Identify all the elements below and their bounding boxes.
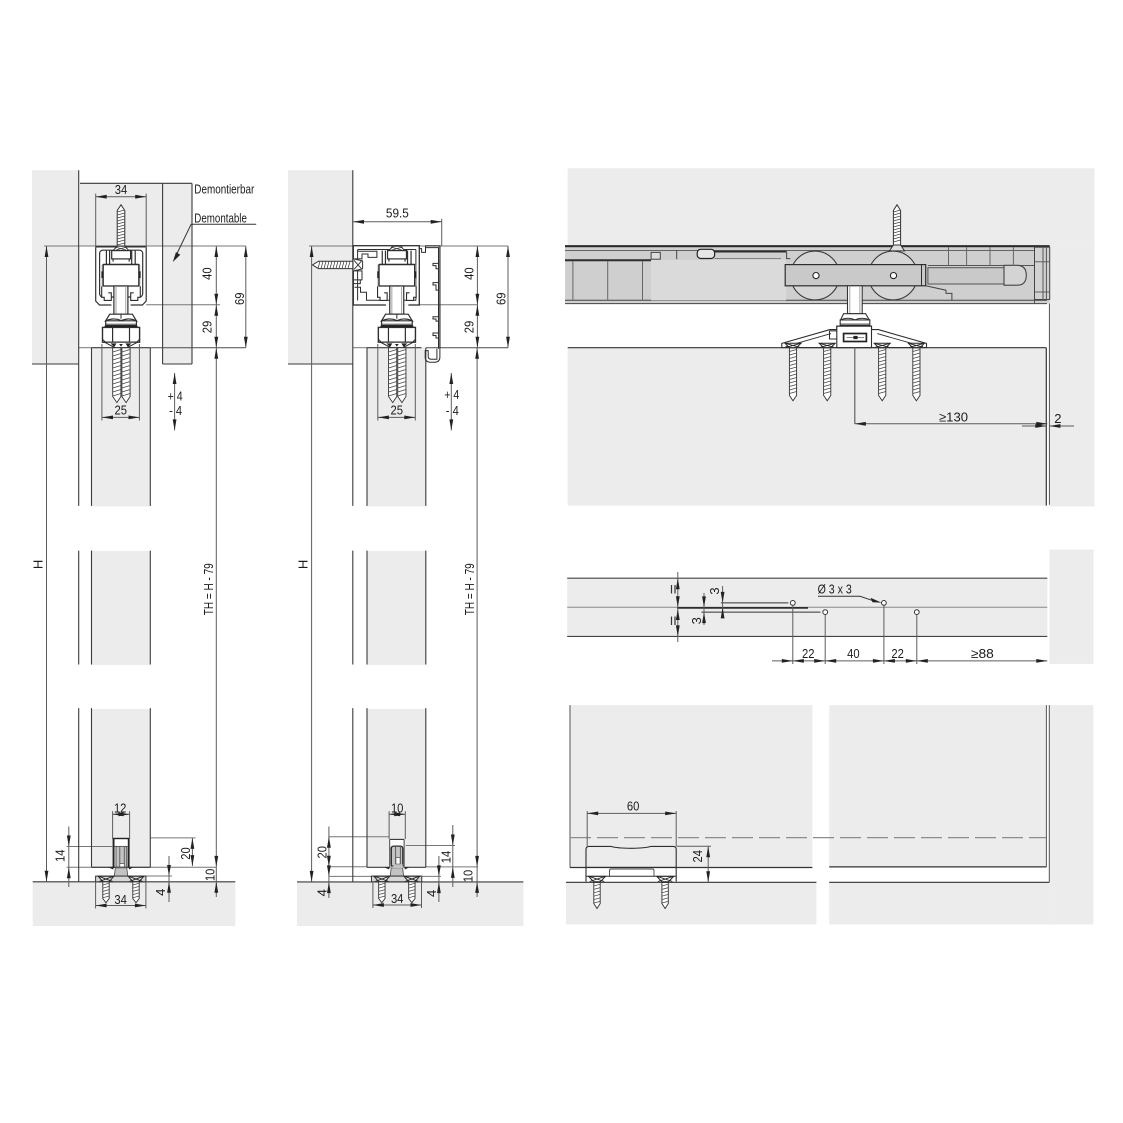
svg-text:TH = H - 79: TH = H - 79	[462, 563, 477, 615]
svg-text:H: H	[30, 560, 45, 569]
svg-text:20: 20	[315, 846, 330, 859]
svg-text:40: 40	[200, 267, 215, 280]
svg-text:H: H	[296, 560, 311, 569]
svg-text:4: 4	[153, 889, 168, 896]
svg-text:22: 22	[891, 646, 904, 661]
svg-text:34: 34	[114, 892, 127, 907]
svg-text:- 4: - 4	[446, 403, 459, 418]
svg-text:3: 3	[689, 617, 704, 624]
svg-text:+ 4: + 4	[168, 389, 183, 404]
svg-text:20: 20	[178, 847, 193, 860]
svg-text:10: 10	[391, 800, 404, 815]
svg-text:40: 40	[461, 267, 476, 280]
svg-text:+ 4: + 4	[444, 387, 459, 402]
svg-text:3: 3	[707, 587, 722, 594]
svg-text:Ø 3 x 3: Ø 3 x 3	[818, 582, 852, 597]
svg-text:40: 40	[847, 646, 860, 661]
svg-text:Demontierbar: Demontierbar	[194, 182, 255, 197]
svg-text:34: 34	[391, 891, 404, 906]
svg-text:TH = H - 79: TH = H - 79	[201, 563, 216, 615]
svg-text:29: 29	[200, 321, 215, 334]
svg-text:60: 60	[627, 799, 640, 814]
svg-text:22: 22	[802, 646, 815, 661]
svg-text:Demontable: Demontable	[194, 210, 247, 225]
svg-text:≥130: ≥130	[939, 410, 968, 425]
svg-text:29: 29	[461, 321, 476, 334]
svg-text:25: 25	[115, 402, 128, 417]
svg-text:2: 2	[1054, 411, 1061, 426]
svg-text:34: 34	[115, 182, 128, 197]
svg-text:4: 4	[315, 889, 330, 896]
svg-text:69: 69	[494, 292, 509, 305]
svg-text:- 4: - 4	[169, 403, 182, 418]
svg-text:14: 14	[438, 851, 453, 864]
svg-text:24: 24	[690, 850, 705, 863]
svg-text:≥88: ≥88	[971, 646, 994, 661]
svg-text:69: 69	[232, 292, 247, 305]
svg-text:10: 10	[202, 869, 217, 882]
svg-text:4: 4	[424, 890, 439, 897]
svg-text:14: 14	[53, 850, 68, 863]
svg-text:25: 25	[391, 402, 404, 417]
svg-text:12: 12	[114, 800, 127, 815]
svg-text:10: 10	[460, 870, 475, 883]
svg-text:59.5: 59.5	[386, 205, 409, 220]
